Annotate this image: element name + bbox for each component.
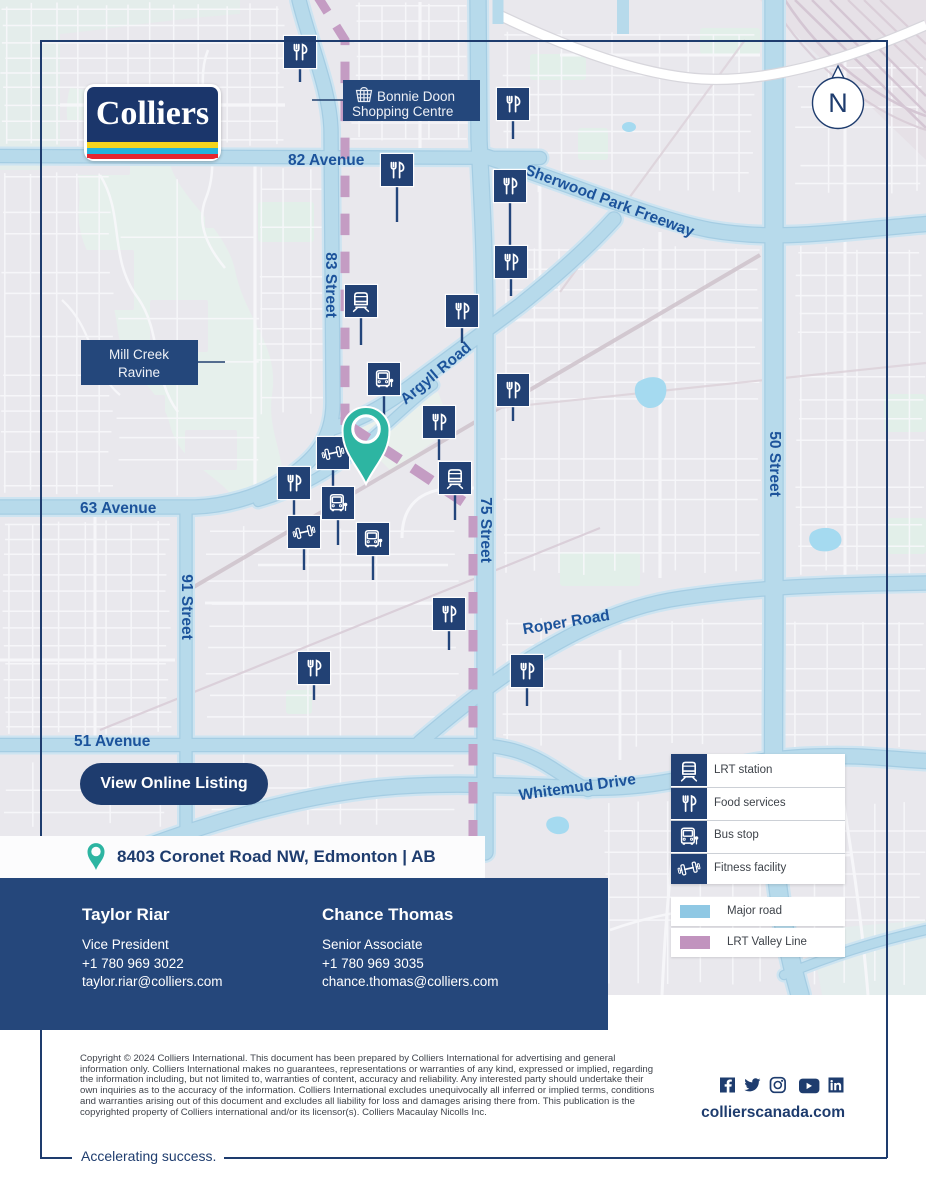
svg-text:51 Avenue: 51 Avenue xyxy=(74,733,151,750)
svg-text:Shopping Centre: Shopping Centre xyxy=(352,104,453,119)
svg-text:Mill Creek: Mill Creek xyxy=(109,347,169,362)
svg-text:Bonnie Doon: Bonnie Doon xyxy=(377,89,455,104)
svg-text:50 Street: 50 Street xyxy=(766,431,783,496)
svg-text:83 Street: 83 Street xyxy=(322,252,339,317)
svg-text:63 Avenue: 63 Avenue xyxy=(80,500,157,517)
svg-text:82 Avenue: 82 Avenue xyxy=(288,152,365,169)
svg-text:Ravine: Ravine xyxy=(118,365,160,380)
svg-text:91 Street: 91 Street xyxy=(178,574,195,639)
svg-text:N: N xyxy=(828,88,848,118)
svg-text:75 Street: 75 Street xyxy=(477,497,494,562)
